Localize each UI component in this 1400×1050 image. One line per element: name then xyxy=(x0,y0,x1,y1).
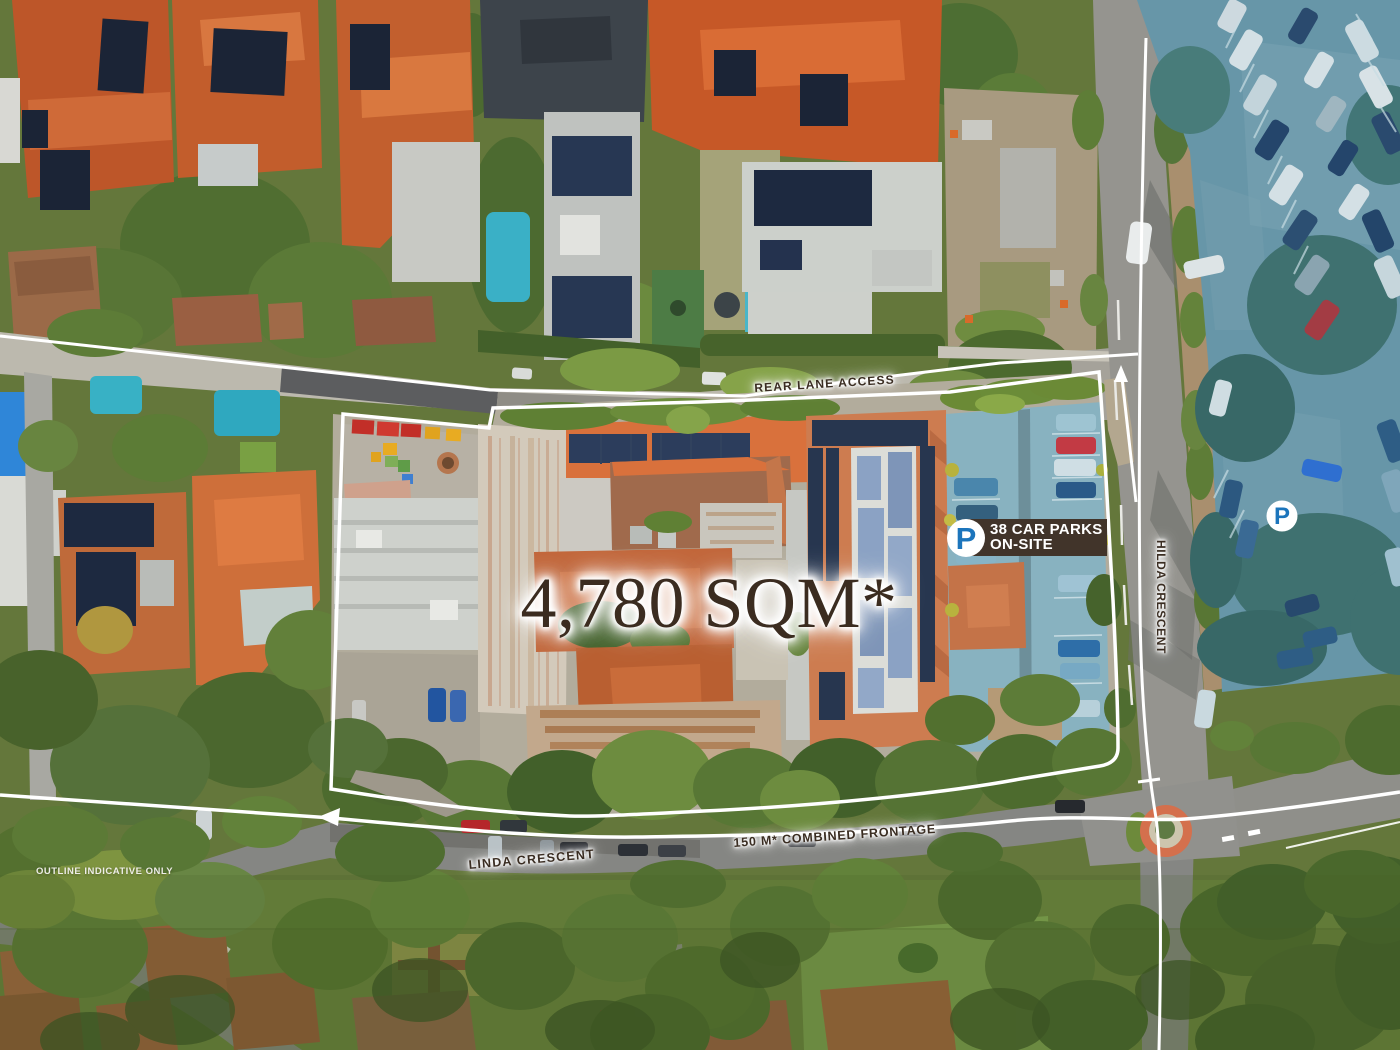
svg-text:P: P xyxy=(956,521,977,556)
svg-text:P: P xyxy=(1274,503,1290,530)
